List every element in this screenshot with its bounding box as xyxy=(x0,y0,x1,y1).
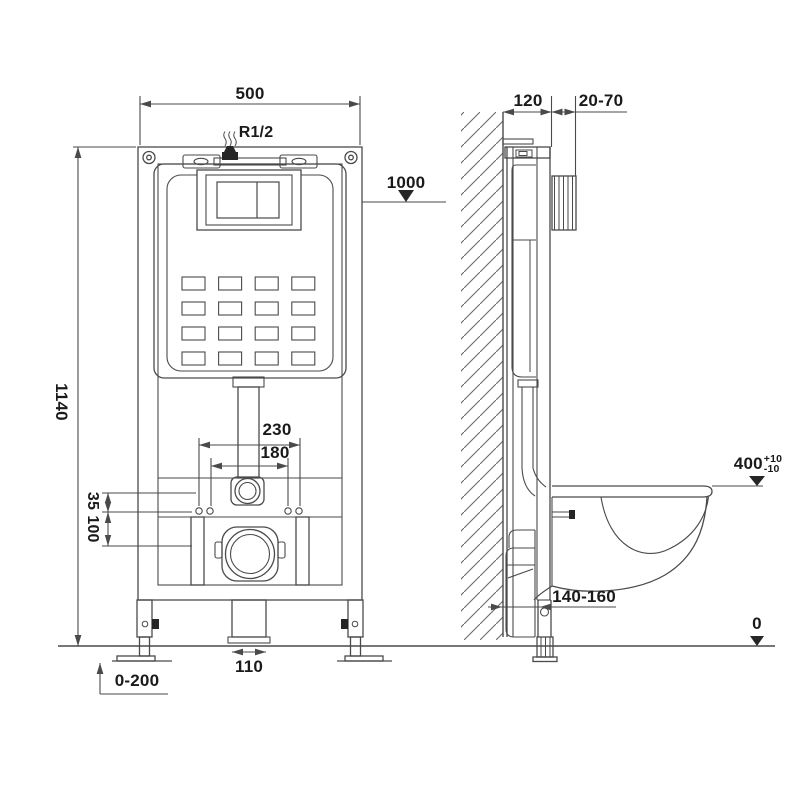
dim-label-drain-140-160: 140-160 xyxy=(552,587,616,607)
cistern-emboss-grid xyxy=(182,277,315,365)
side-drain-bend xyxy=(506,530,535,637)
dim-label-offset-100: 100 xyxy=(83,515,101,542)
drain-fitting-front xyxy=(215,527,285,581)
dim-label-frame-height-1140: 1140 xyxy=(51,383,71,421)
dim-label-inlet-r12: R1/2 xyxy=(239,124,274,142)
level-marker-400 xyxy=(712,476,765,486)
dim-label-drain-110: 110 xyxy=(235,657,263,677)
dimension-35-100 xyxy=(102,493,196,546)
side-flush-pipe xyxy=(518,380,546,496)
technical-drawing-canvas: 500 R1/2 1000 1140 230 180 35 100 110 0-… xyxy=(0,0,800,800)
side-support-leg xyxy=(533,600,557,662)
dim-label-bowl-height-400: 400 +10 -10 xyxy=(734,454,782,474)
bowl-height-value: 400 xyxy=(734,454,763,474)
fixing-holes xyxy=(196,508,302,514)
dim-label-finish-20-70: 20-70 xyxy=(579,91,623,111)
tolerance-minus: -10 xyxy=(764,464,782,474)
dim-label-floor-0: 0 xyxy=(752,614,762,634)
dimension-1140 xyxy=(73,147,136,646)
dim-label-span-230: 230 xyxy=(263,420,292,440)
dim-label-install-height-1000: 1000 xyxy=(387,173,426,193)
drain-pipe-bottom xyxy=(228,600,270,643)
wall-hatch xyxy=(461,112,503,640)
dim-label-width-500: 500 xyxy=(236,84,265,104)
dim-label-depth-120: 120 xyxy=(514,91,543,111)
bowl-height-tolerance: +10 -10 xyxy=(764,454,782,474)
wall-finish-spacer xyxy=(552,176,576,230)
toilet-bowl-side xyxy=(534,486,712,600)
frame-crossrails xyxy=(158,478,342,585)
flush-pipe-front xyxy=(231,377,264,505)
dim-label-offset-35: 35 xyxy=(83,492,101,510)
floor-line xyxy=(58,646,775,661)
dimension-110 xyxy=(232,649,266,656)
dim-label-span-180: 180 xyxy=(261,443,290,463)
side-frame xyxy=(503,139,551,637)
flush-plate xyxy=(197,158,301,230)
water-inlet-valve xyxy=(222,132,238,161)
dim-label-leg-adjust-0-200: 0-200 xyxy=(115,671,159,691)
side-cistern xyxy=(512,165,536,377)
level-marker-0 xyxy=(750,636,764,646)
